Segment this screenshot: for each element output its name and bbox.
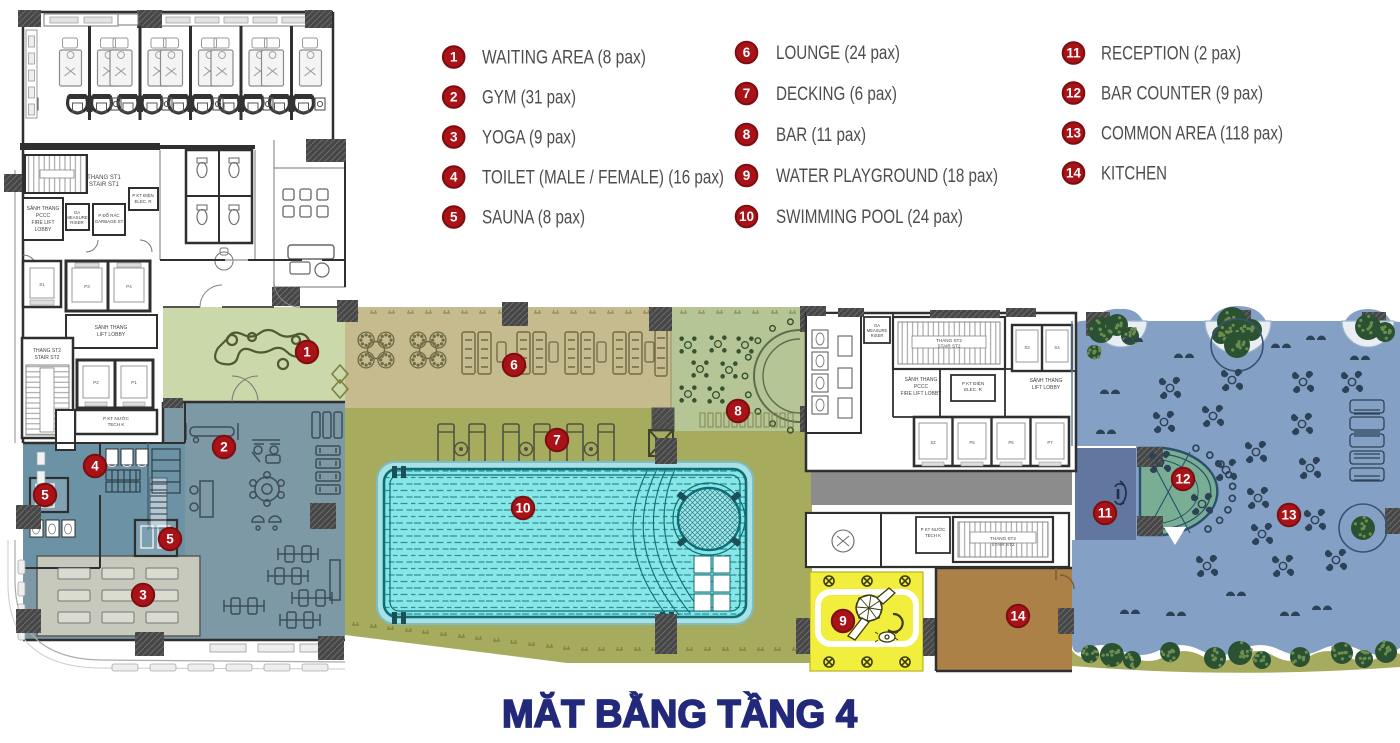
svg-text:FIRE LIFT LOBBY: FIRE LIFT LOBBY [900, 391, 942, 397]
svg-text:12: 12 [1066, 86, 1081, 101]
svg-text:P KT NƯỚC: P KT NƯỚC [103, 415, 129, 421]
svg-text:P ĐỔ RÁC: P ĐỔ RÁC [98, 213, 119, 218]
svg-text:BAR (11 pax): BAR (11 pax) [776, 125, 866, 146]
svg-text:SẢNH THANG: SẢNH THANG [95, 324, 128, 331]
svg-text:P4: P4 [126, 284, 132, 289]
svg-text:MĂT BẰNG TẦNG 4: MĂT BẰNG TẦNG 4 [502, 692, 857, 736]
svg-text:13: 13 [1281, 508, 1297, 523]
svg-text:SAUNA (8 pax): SAUNA (8 pax) [482, 208, 585, 229]
svg-text:LOBBY: LOBBY [35, 227, 52, 233]
svg-text:SWIMMING POOL (24 pax): SWIMMING POOL (24 pax) [776, 207, 963, 228]
svg-text:P1: P1 [131, 380, 137, 385]
svg-text:RISER: RISER [871, 333, 884, 338]
svg-text:GYM (31 pax): GYM (31 pax) [482, 88, 576, 109]
svg-text:2: 2 [220, 440, 228, 455]
svg-text:FIRE LIFT: FIRE LIFT [31, 220, 54, 226]
svg-text:14: 14 [1066, 166, 1082, 181]
svg-text:TECH K: TECH K [108, 422, 126, 427]
svg-text:S1: S1 [39, 282, 45, 287]
svg-text:THANG ST2: THANG ST2 [936, 338, 962, 343]
svg-text:10: 10 [515, 501, 530, 516]
svg-text:9: 9 [743, 168, 751, 183]
svg-text:PCCC: PCCC [36, 213, 51, 219]
svg-text:3: 3 [450, 130, 458, 145]
svg-text:9: 9 [839, 614, 847, 629]
svg-text:RISER: RISER [70, 220, 83, 225]
svg-text:ELEC. R: ELEC. R [964, 387, 983, 392]
svg-text:P6: P6 [1008, 440, 1014, 445]
svg-text:6: 6 [743, 45, 751, 60]
svg-text:TECH K: TECH K [925, 533, 941, 538]
svg-text:3: 3 [139, 588, 147, 603]
svg-text:WATER PLAYGROUND (18 pax): WATER PLAYGROUND (18 pax) [776, 166, 998, 187]
svg-text:COMMON AREA (118 pax): COMMON AREA (118 pax) [1101, 124, 1283, 145]
svg-text:14: 14 [1010, 609, 1026, 624]
svg-text:4: 4 [450, 170, 458, 185]
svg-text:8: 8 [734, 404, 742, 419]
svg-text:P KT ĐIỆN: P KT ĐIỆN [132, 193, 153, 198]
svg-text:2: 2 [450, 90, 458, 105]
svg-text:THANG ST2: THANG ST2 [33, 348, 61, 354]
svg-text:1: 1 [303, 345, 311, 360]
svg-text:12: 12 [1175, 472, 1190, 487]
svg-text:7: 7 [553, 433, 561, 448]
svg-text:ELEC. R: ELEC. R [134, 199, 151, 204]
svg-text:11: 11 [1098, 506, 1113, 521]
svg-text:S3: S3 [1024, 345, 1030, 350]
svg-text:STAIR ST2: STAIR ST2 [35, 355, 60, 361]
svg-text:10: 10 [739, 209, 754, 224]
svg-text:8: 8 [743, 127, 751, 142]
svg-text:5: 5 [166, 532, 174, 547]
svg-text:5: 5 [450, 210, 458, 225]
svg-text:STAIR ST1: STAIR ST1 [89, 182, 120, 188]
svg-text:RECEPTION (2 pax): RECEPTION (2 pax) [1101, 44, 1241, 65]
svg-text:GARBAGE ST: GARBAGE ST [95, 219, 124, 224]
svg-text:P KT ĐIỆN: P KT ĐIỆN [962, 379, 984, 386]
svg-text:P2: P2 [93, 380, 99, 385]
svg-text:THANG ST2: THANG ST2 [990, 536, 1016, 541]
svg-text:BAR COUNTER (9 pax): BAR COUNTER (9 pax) [1101, 84, 1263, 105]
svg-text:SẢNH THANG: SẢNH THANG [27, 205, 60, 212]
svg-text:P KT NƯỚC: P KT NƯỚC [921, 527, 946, 532]
svg-text:LOUNGE (24 pax): LOUNGE (24 pax) [776, 43, 900, 64]
svg-text:STAIR ST2: STAIR ST2 [938, 344, 961, 349]
svg-text:THANG ST1: THANG ST1 [87, 175, 121, 181]
svg-text:S2: S2 [930, 440, 936, 445]
svg-text:YOGA (9 pax): YOGA (9 pax) [482, 128, 576, 149]
svg-text:1: 1 [450, 50, 458, 65]
svg-text:P7: P7 [1047, 440, 1053, 445]
svg-text:TOILET (MALE / FEMALE) (16 pax: TOILET (MALE / FEMALE) (16 pax) [482, 168, 724, 189]
svg-text:SẢNH THANG: SẢNH THANG [905, 376, 938, 383]
svg-text:WAITING AREA (8 pax): WAITING AREA (8 pax) [482, 48, 646, 69]
svg-text:6: 6 [510, 358, 518, 373]
svg-text:5: 5 [41, 488, 49, 503]
svg-text:13: 13 [1066, 126, 1082, 141]
svg-text:S4: S4 [1054, 345, 1060, 350]
svg-text:DECKING (6 pax): DECKING (6 pax) [776, 84, 897, 105]
svg-text:SẢNH THANG: SẢNH THANG [1030, 377, 1063, 384]
svg-text:4: 4 [91, 459, 99, 474]
svg-text:11: 11 [1066, 46, 1081, 61]
svg-text:P5: P5 [969, 440, 975, 445]
svg-text:7: 7 [743, 86, 751, 101]
svg-text:LIFT LOBBY: LIFT LOBBY [97, 332, 126, 338]
svg-text:PCCC: PCCC [914, 384, 929, 390]
svg-text:STAIR ST2: STAIR ST2 [992, 542, 1015, 547]
svg-text:KITCHEN: KITCHEN [1101, 164, 1167, 185]
svg-text:LIFT LOBBY: LIFT LOBBY [1032, 385, 1061, 391]
svg-text:P3: P3 [84, 284, 90, 289]
